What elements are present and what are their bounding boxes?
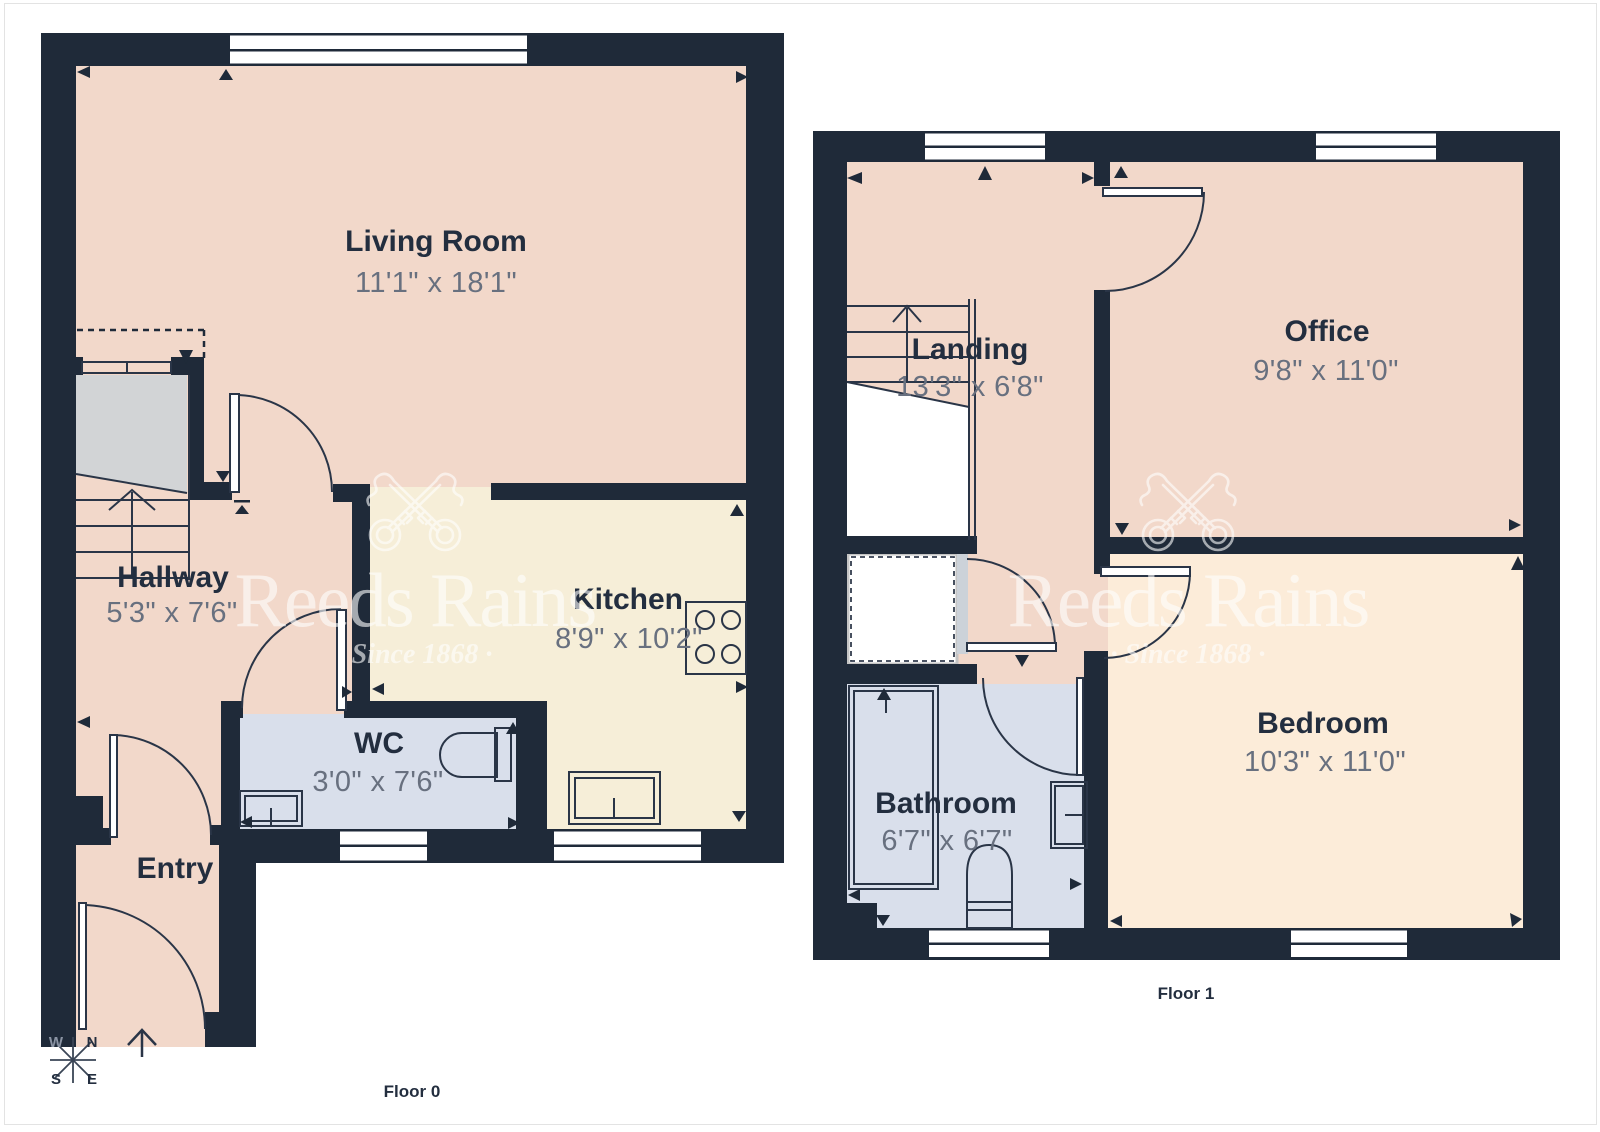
svg-text:N: N xyxy=(87,1034,98,1051)
svg-text:Entry: Entry xyxy=(137,852,214,885)
svg-text:E: E xyxy=(87,1071,97,1088)
svg-text:Living Room: Living Room xyxy=(345,225,527,258)
svg-text:6'7" x 6'7": 6'7" x 6'7" xyxy=(881,825,1012,857)
svg-text:Floor 1: Floor 1 xyxy=(1158,984,1215,1003)
svg-text:Reeds Rains: Reeds Rains xyxy=(235,557,596,643)
svg-text:Reeds Rains: Reeds Rains xyxy=(1008,557,1369,643)
svg-text:Floor 0: Floor 0 xyxy=(384,1082,441,1101)
svg-text:· Since 1868 ·: · Since 1868 · xyxy=(338,639,493,670)
svg-text:· Since 1868 ·: · Since 1868 · xyxy=(1111,639,1266,670)
svg-text:Landing: Landing xyxy=(912,333,1029,366)
svg-text:WC: WC xyxy=(354,727,404,760)
svg-text:Bathroom: Bathroom xyxy=(875,787,1017,820)
svg-text:10'3" x 11'0": 10'3" x 11'0" xyxy=(1244,746,1406,778)
svg-text:13'3" x 6'8": 13'3" x 6'8" xyxy=(896,371,1044,403)
svg-text:W: W xyxy=(49,1034,64,1051)
svg-text:Office: Office xyxy=(1284,315,1369,348)
svg-text:Hallway: Hallway xyxy=(117,561,229,594)
svg-text:9'8" x 11'0": 9'8" x 11'0" xyxy=(1253,355,1399,387)
svg-text:S: S xyxy=(51,1071,61,1088)
svg-text:Bedroom: Bedroom xyxy=(1257,707,1389,740)
svg-text:3'0" x 7'6": 3'0" x 7'6" xyxy=(312,766,443,798)
svg-text:5'3" x 7'6": 5'3" x 7'6" xyxy=(106,597,237,629)
svg-text:11'1" x 18'1": 11'1" x 18'1" xyxy=(355,267,517,299)
